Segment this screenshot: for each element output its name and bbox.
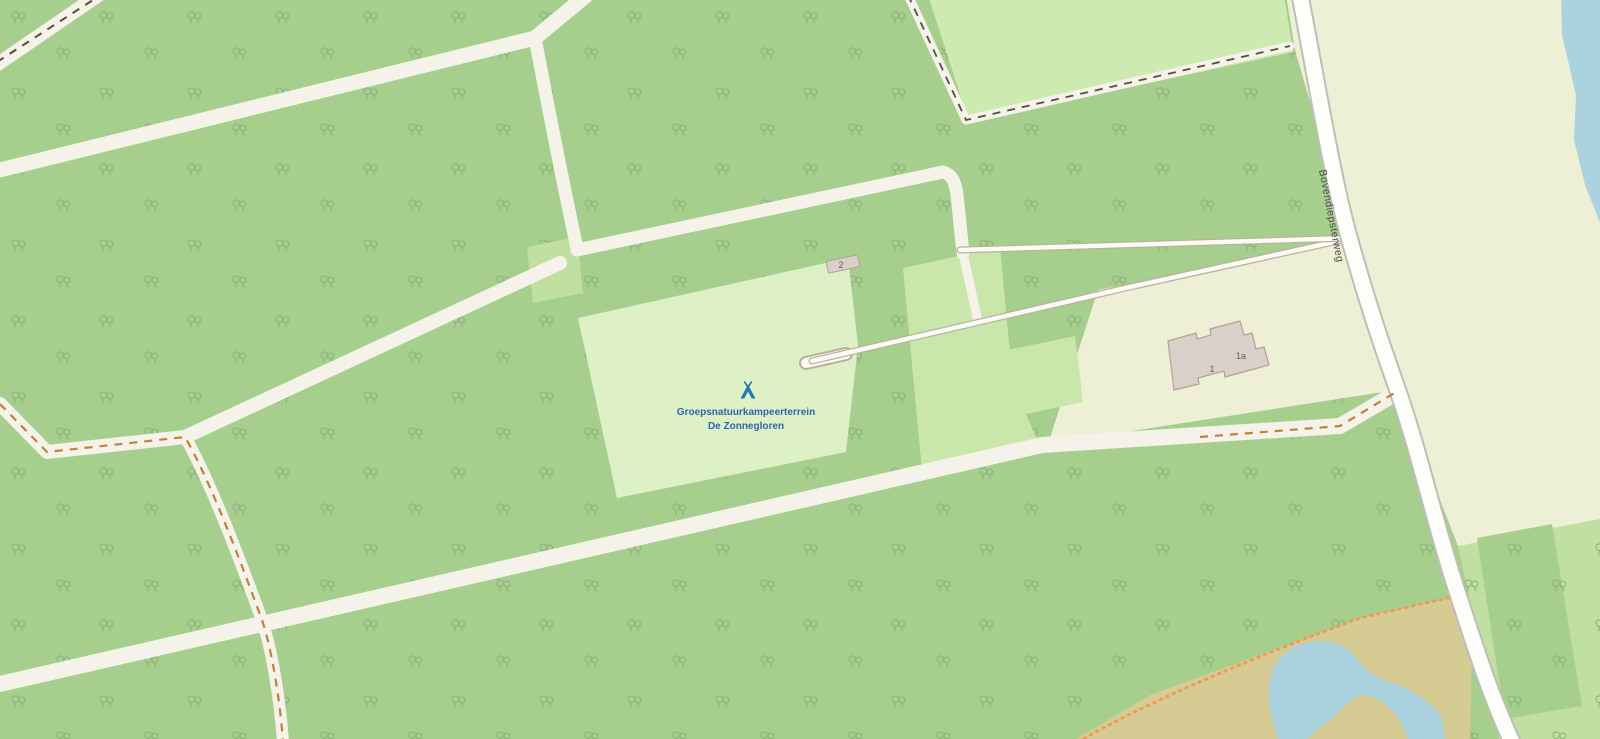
map-canvas[interactable]: 1 1a 2 Groepsnatuurkampeerterrein De Zon…	[0, 0, 1600, 739]
building-2-label: 2	[838, 260, 843, 270]
building-1-label: 1	[1209, 364, 1214, 374]
map-svg: 1 1a 2 Groepsnatuurkampeerterrein De Zon…	[0, 0, 1600, 739]
campsite-label-line2: De Zonnegloren	[708, 421, 784, 432]
grass-square	[1008, 336, 1083, 416]
campsite-label-line1: Groepsnatuurkampeerterrein	[677, 407, 815, 418]
building-1a-label: 1a	[1236, 351, 1246, 361]
